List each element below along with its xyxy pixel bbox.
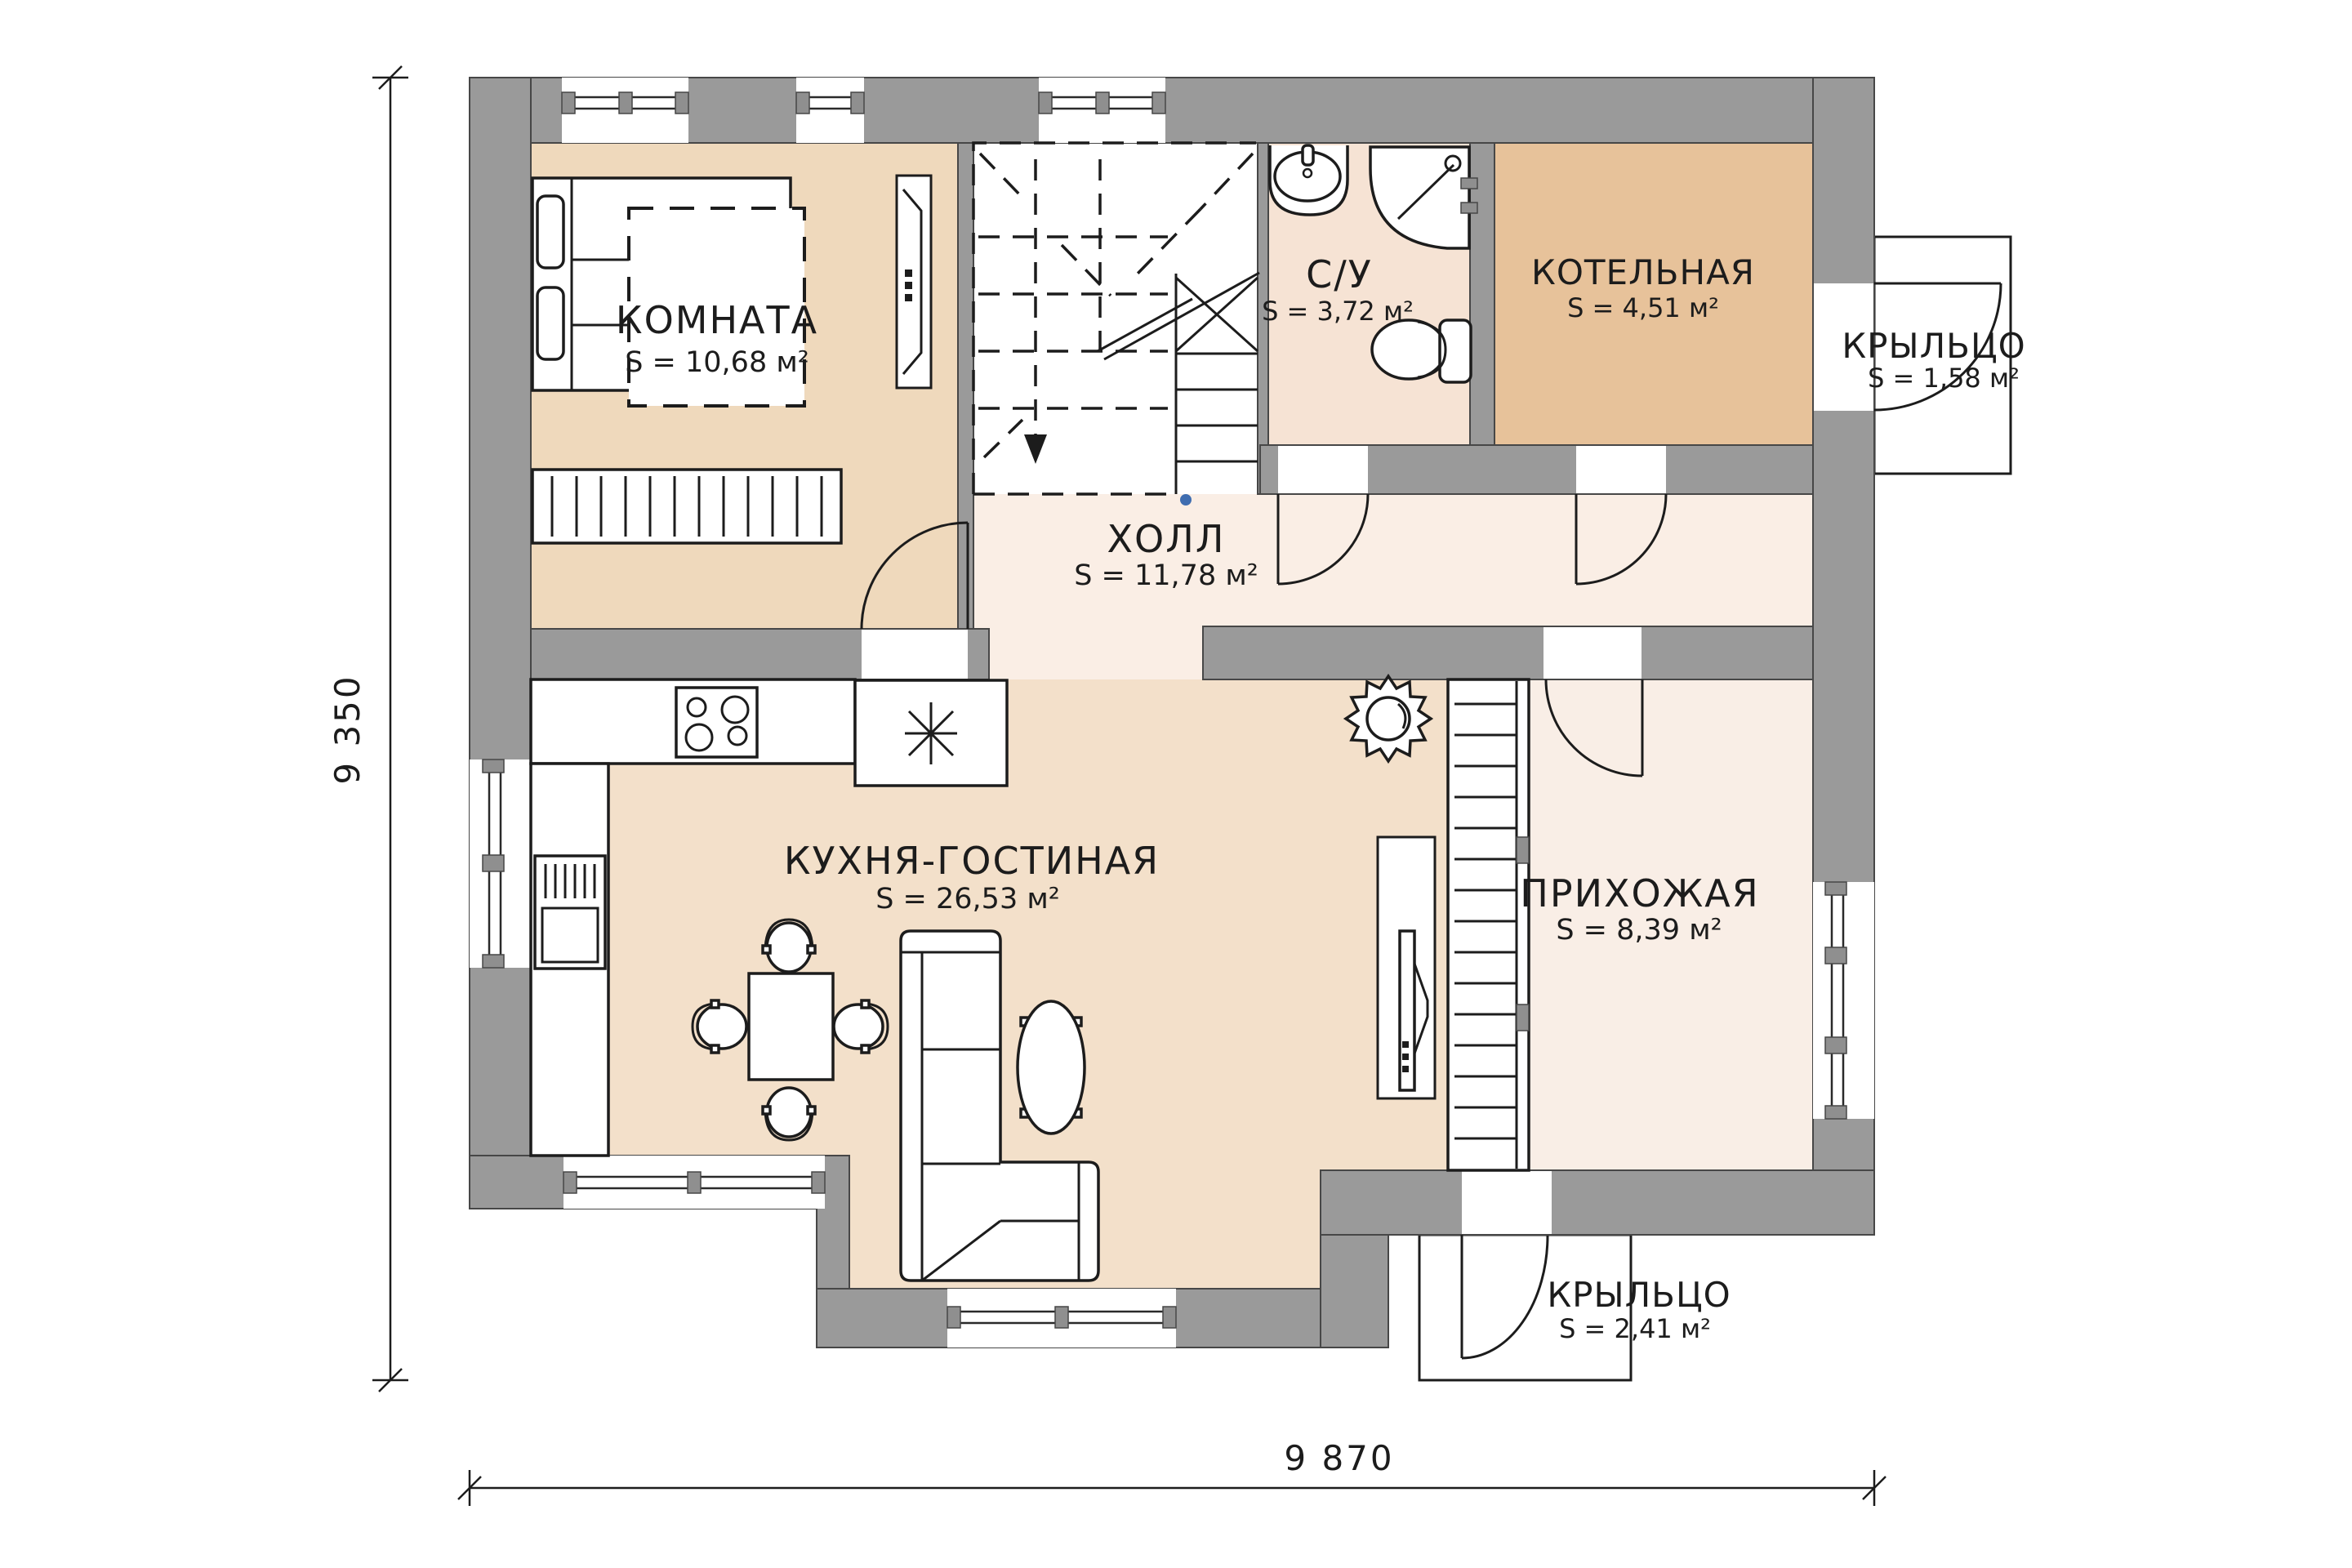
- label-kryltso-top-area: S = 1,58 м²: [1868, 363, 2020, 394]
- label-holl-area: S = 11,78 м²: [1074, 559, 1258, 592]
- wardrobe-komnata: [532, 470, 841, 543]
- pillow: [537, 287, 563, 359]
- dimension-vertical: 9 350: [327, 66, 408, 1392]
- dimension-horizontal: 9 870: [458, 1438, 1886, 1506]
- window-bottom-b: [947, 1289, 1176, 1347]
- wall-left: [470, 78, 531, 1209]
- label-kuhnya-area: S = 26,53 м²: [875, 883, 1060, 915]
- window-top-1: [562, 78, 688, 143]
- tv-stand: [1378, 837, 1435, 1098]
- tap: [1303, 145, 1313, 165]
- label-kotelnaya-area: S = 4,51 м²: [1567, 292, 1719, 323]
- tv-komnata: [897, 176, 931, 388]
- label-komnata: КОМНАТА: [616, 298, 818, 342]
- label-kryltso-bottom-area: S = 2,41 м²: [1559, 1313, 1711, 1344]
- label-komnata-area: S = 10,68 м²: [625, 346, 809, 379]
- label-kryltso-top: КРЫЛЬЦО: [1842, 326, 2025, 366]
- wall-komnata-stairs: [958, 143, 973, 629]
- window-top-3: [1039, 78, 1165, 143]
- coffee-table: [1018, 1001, 1085, 1134]
- window-right: [1813, 882, 1874, 1119]
- wall-bottom-c: [1321, 1170, 1874, 1235]
- door-gap-komnata: [862, 630, 968, 679]
- door-gap-su: [1278, 446, 1368, 493]
- label-su: С/У: [1306, 252, 1373, 296]
- sink: [1270, 145, 1347, 215]
- window-left: [470, 759, 531, 968]
- pillow: [537, 196, 563, 268]
- stove: [676, 688, 757, 757]
- label-su-area: S = 3,72 м²: [1262, 296, 1414, 327]
- dimension-height-value: 9 350: [327, 674, 367, 784]
- label-holl: ХОЛЛ: [1107, 517, 1226, 561]
- floor-plan-page: КОМНАТА S = 10,68 м² С/У S = 3,72 м² КОТ…: [0, 0, 2352, 1568]
- door-gap-entrance: [1462, 1171, 1552, 1234]
- label-prihozhaya: ПРИХОЖАЯ: [1520, 871, 1759, 915]
- window-top-2: [796, 78, 864, 143]
- fridge: [535, 856, 605, 969]
- floor-plan-canvas: КОМНАТА S = 10,68 м² С/У S = 3,72 м² КОТ…: [0, 0, 2352, 1568]
- stairwell-floor: [973, 143, 1258, 494]
- wardrobe-prihozhaya: [1448, 679, 1529, 1170]
- wall-holl-bottom: [1203, 626, 1813, 679]
- stairs-marker-dot: [1180, 494, 1192, 506]
- label-kuhnya: КУХНЯ-ГОСТИНАЯ: [784, 839, 1160, 883]
- door-gap-kotelnaya: [1576, 446, 1666, 493]
- sink-unit: [855, 680, 1007, 786]
- window-bottom-a: [563, 1156, 825, 1209]
- dimension-width-value: 9 870: [1284, 1438, 1394, 1478]
- label-kryltso-bottom: КРЫЛЬЦО: [1547, 1275, 1731, 1315]
- door-gap-prihozhaya: [1543, 627, 1641, 679]
- dining-table: [749, 973, 833, 1080]
- label-kotelnaya: КОТЕЛЬНАЯ: [1531, 252, 1755, 292]
- toilet: [1372, 320, 1471, 382]
- label-prihozhaya-area: S = 8,39 м²: [1556, 914, 1722, 947]
